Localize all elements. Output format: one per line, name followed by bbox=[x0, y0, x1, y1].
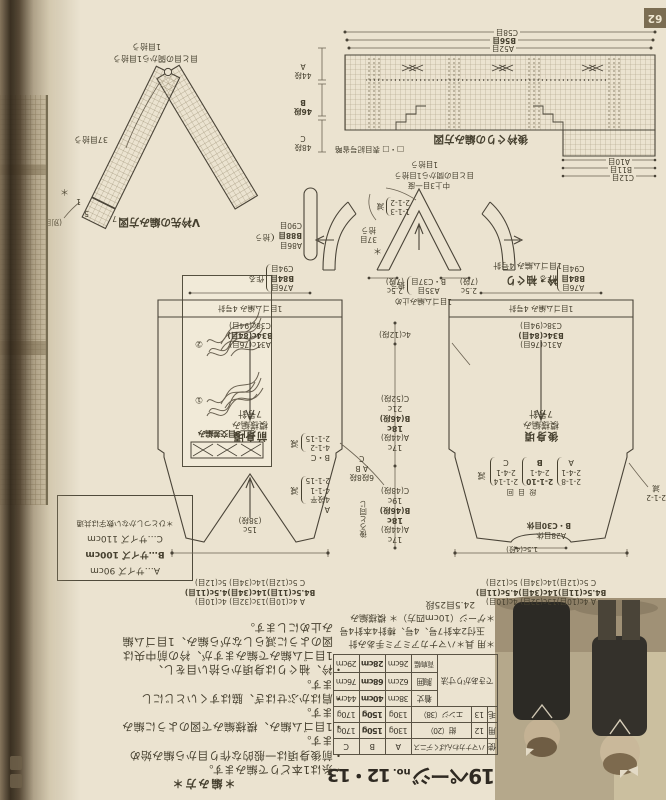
dec-line: 2-1-8 bbox=[561, 477, 581, 486]
dim-line: 21c bbox=[370, 403, 420, 413]
dim-line: A(44段) bbox=[370, 433, 420, 442]
table-row: 使 ハマナカわんぱくデニス A B C bbox=[333, 739, 497, 755]
vneck-apex-stitch bbox=[164, 68, 171, 75]
dec-word: 減 bbox=[646, 483, 666, 492]
collar-dec: 1-1-3 2-1-2 減 bbox=[377, 197, 410, 216]
table-row: 毛 13 エンジ（38） 130g 150g 170g bbox=[333, 707, 497, 723]
dim-line: 18c bbox=[370, 423, 420, 433]
chart-band bbox=[0, 341, 46, 355]
page-number-badge: 62 bbox=[644, 8, 666, 28]
howto-line: ・1目ゴム編み、模様編みで図のように編み bbox=[62, 719, 344, 733]
backneck-top-width-b: B11目 bbox=[608, 165, 634, 174]
yarn-color: エンジ（38） bbox=[411, 707, 471, 723]
front-top-widths: A 4c(10目)13c(32目) 4c(10目) B4.5c(11目)14c(… bbox=[170, 578, 330, 606]
pick-line: A35目 bbox=[411, 286, 446, 295]
dim-line: C(52段) bbox=[370, 394, 420, 403]
backneck-bottom-width-c: C58目 bbox=[494, 28, 520, 37]
amount-a: 130g bbox=[385, 723, 411, 739]
finished-a: 26cm bbox=[385, 655, 411, 673]
howto-line: ・衿、袖ぐりは身頃から拾い目をし、 bbox=[62, 662, 344, 676]
rows-size: A bbox=[290, 61, 316, 70]
backneck-top-width-a: A10目 bbox=[606, 157, 632, 166]
width-line: C 5c(12目)14c(34目) 5c(12目) bbox=[170, 578, 330, 587]
back-hold-bc: B・C30目休 bbox=[527, 521, 571, 530]
dec-stack: 4-1-2 2-1-15 bbox=[302, 433, 331, 452]
width-line: A31c(76目) bbox=[491, 340, 591, 349]
finished-name: 胸囲 bbox=[411, 673, 437, 691]
piece-name: 後身頃 bbox=[508, 429, 574, 442]
dec-line: 2-1-15 bbox=[306, 476, 331, 485]
dec-stack: 4段平 4-1-1 2-1-15 bbox=[302, 476, 331, 504]
howto-line: ます。 bbox=[62, 676, 344, 690]
dec-line: 2-4-1 bbox=[494, 468, 519, 477]
collar-rib-label: 1目ゴム編み 4号針 bbox=[493, 260, 562, 270]
backneck-top-width-c: C12目 bbox=[610, 173, 636, 182]
arm-line: 37目 bbox=[360, 235, 377, 244]
rows-size: C bbox=[290, 133, 316, 142]
dim-line: (7段) bbox=[460, 276, 478, 285]
finished-b: 68cm bbox=[359, 673, 385, 691]
dec-word: 減 bbox=[291, 485, 299, 495]
arm-line: 拾う bbox=[360, 225, 377, 234]
colhead-char: 使 bbox=[488, 739, 498, 755]
colhead-char: 毛 bbox=[488, 707, 498, 723]
dec-line: 4段平 bbox=[306, 495, 331, 504]
center-dims-lower: 17c A(44段) 18c B(46段) 21c C(52段) bbox=[370, 394, 420, 452]
caston-word: 作る bbox=[248, 273, 264, 283]
adjacent-page-chart-sliver bbox=[0, 95, 48, 505]
yarn-no: 13 bbox=[472, 707, 488, 723]
howto-line: み止めにします。 bbox=[62, 620, 344, 634]
dec-size: B・C bbox=[291, 452, 331, 462]
v-depth-line: 15c bbox=[226, 525, 274, 534]
front-dec-bc: B・C 4-1-2 2-1-15 減 bbox=[291, 433, 331, 462]
table-row: できあがり寸法 着丈 38cm 40cm 44cm bbox=[333, 691, 497, 707]
vneck-pick37: 37目拾う bbox=[74, 134, 108, 144]
dim-line: A(44段) bbox=[370, 525, 420, 534]
pattern-title: 19ページ no. 12・13 bbox=[325, 763, 495, 789]
vneck-star: ＊ bbox=[60, 185, 69, 196]
rows-value: 44段 bbox=[290, 71, 316, 80]
dec-header: 段 目 回 bbox=[461, 487, 581, 496]
child2-sweater bbox=[513, 602, 570, 720]
dec-size: A bbox=[291, 504, 331, 514]
dim-line: 19c bbox=[370, 495, 420, 505]
pick-line: B・C37目 bbox=[411, 276, 446, 285]
materials-table: 使 ハマナカわんぱくデニス A B C 用 12 紺（20） 130g 150g… bbox=[333, 654, 498, 755]
children-photo bbox=[495, 598, 666, 800]
back-neck-depth: 1.5c(4段) bbox=[506, 544, 538, 553]
rows-size: B bbox=[290, 97, 316, 106]
dec-line: 2-1-2 bbox=[646, 493, 666, 502]
yarn-name: ハマナカわんぱくデニス bbox=[411, 739, 487, 755]
backneck-mini-grid bbox=[563, 130, 655, 156]
scanned-knitting-page: 19ページ no. 12・13 使 ハマナカわんぱくデニス A B C 用 12… bbox=[0, 0, 666, 800]
amount-a: 130g bbox=[385, 707, 411, 723]
vneck-n1: 1 bbox=[76, 197, 81, 206]
dec-line: 2-4-1 bbox=[561, 468, 581, 477]
collar-star: ＊ bbox=[373, 244, 382, 255]
dim-line: 2.5c bbox=[460, 286, 478, 295]
back-caption: 後身頃 模様編み 7号針 bbox=[508, 406, 574, 442]
collar-left-dim: 2.5c (7段) bbox=[460, 276, 478, 295]
dec-col-a: 2-1-8 2-4-1 A bbox=[557, 458, 581, 487]
finished-b: 40cm bbox=[359, 691, 385, 707]
backneck-main-grid bbox=[345, 55, 655, 130]
front-same-as-back: 後ろと同じ bbox=[359, 464, 368, 538]
finished-a: 62cm bbox=[385, 673, 411, 691]
shoulder-line: C bbox=[349, 454, 374, 463]
armhole-rows-b: 46段 B bbox=[290, 97, 316, 116]
center-dims-upper: 17c A(44段) 18c B(46段) 19c C(48段) bbox=[370, 486, 420, 544]
finished-name: 着丈 bbox=[411, 691, 437, 707]
backneck-chart-caption: 後衿ぐりの編み方図 bbox=[432, 132, 531, 145]
stitch-name: 模様編み bbox=[217, 418, 283, 429]
dec-line: 1-1-3 bbox=[390, 207, 410, 216]
armhole-rows-c: 48段 C bbox=[290, 133, 316, 152]
front-dec-a: A 4段平 4-1-1 2-1-15 減 bbox=[291, 476, 331, 514]
armhole-rows-a: 44段 A bbox=[290, 61, 316, 80]
armhole-band-right bbox=[323, 202, 356, 270]
dec-line: 2-1-15 bbox=[306, 433, 331, 442]
howto-line: ・前後身頃は一般的な作り目から編み始め bbox=[62, 747, 344, 761]
dim-line: B(46段) bbox=[370, 413, 420, 422]
dec-size: A bbox=[561, 458, 581, 468]
collar-pickup: A35目 B・C37目 拾う bbox=[390, 276, 446, 295]
finished-size-label: できあがり寸法 bbox=[438, 655, 498, 707]
table-row: 用 12 紺（20） 130g 150g 170g bbox=[333, 723, 497, 739]
howto-line: ます。 bbox=[62, 705, 344, 719]
pick-word: 拾う bbox=[390, 281, 405, 290]
piece-name: 前身頃 bbox=[217, 429, 283, 442]
collar-caption: 衿・袖ぐり bbox=[506, 273, 559, 286]
width-line: A31c(76目) bbox=[200, 340, 300, 349]
howto-line: 図のように減らしながら編み、1目ゴム編 bbox=[62, 634, 344, 648]
back-neck-dec-block: 段 目 回 2-1-8 2-4-1 A 2-1-10 2-4-1 B 2-1-1… bbox=[461, 458, 581, 497]
tools-line-1: ＊用 具＊ハマナカアミアミ手あみ針 bbox=[348, 637, 495, 648]
v-depth-line: (38段) bbox=[226, 515, 274, 524]
vneck-chart-caption: V衿先の編み方図 bbox=[118, 215, 200, 228]
howto-line: ・糸は1本どりで編みます。 bbox=[62, 762, 344, 776]
width-line: C 5c(12目)14c(34目) 5c(12目) bbox=[461, 578, 621, 587]
vneck-right-arm bbox=[82, 66, 180, 228]
amount-b: 150g bbox=[359, 723, 385, 739]
spine-glyph-mark bbox=[10, 774, 22, 788]
colhead-char: 用 bbox=[488, 723, 498, 739]
howto-line: ・肩はかぶせはぎ、脇はすくいとじにし bbox=[62, 691, 344, 705]
backneck-bottom-width-a: A52目 bbox=[490, 44, 516, 53]
dec-line: 2-1-2 bbox=[390, 197, 410, 206]
howto-heading: ＊編み方＊ bbox=[62, 776, 344, 790]
vneck-pick1: 1目拾う bbox=[132, 41, 161, 51]
size-header-a: A bbox=[385, 739, 411, 755]
rows-value: 46段 bbox=[290, 107, 316, 116]
finished-a: 38cm bbox=[385, 691, 411, 707]
dec-col-c: 2-1-14 2-4-1 C bbox=[490, 458, 519, 487]
howto-block: ＊編み方＊ ・糸は1本どりで編みます。 ・前後身頃は一般的な作り目から編み始め … bbox=[62, 620, 344, 790]
title-no-label: no. bbox=[393, 765, 411, 778]
back-top-widths: A 4c(10目)13c(32目) 4c(10目) B4.5c(11目)14c(… bbox=[461, 578, 621, 606]
dec-line: 4-1-1 bbox=[306, 485, 331, 494]
dec-line: 2-4-1 bbox=[526, 468, 553, 477]
collar-band-a: A86目 bbox=[280, 241, 302, 250]
stitch-name: 模様編み bbox=[508, 418, 574, 429]
dim-line: 17c bbox=[370, 534, 420, 544]
back-hold-a: A28目休 bbox=[536, 531, 566, 540]
chart-band bbox=[0, 165, 46, 175]
collar-apex-1: 中上3目一度 bbox=[408, 181, 450, 190]
dec-word: 減 bbox=[478, 470, 486, 480]
finished-b: 28cm bbox=[359, 655, 385, 673]
front-caption: 前身頃 模様編み 7号針 bbox=[217, 406, 283, 442]
width-line: A 4c(10目)13c(32目) 4c(10目) bbox=[170, 597, 330, 606]
backneck-legend: □・□ 表目記号省略 bbox=[333, 145, 406, 154]
title-page-word: 19ページ bbox=[413, 763, 495, 788]
dec-line: 4-1-2 bbox=[306, 443, 331, 452]
howto-line: 1目ゴム編みで編みますが、衿の前中央は bbox=[62, 648, 344, 662]
size-header-b: B bbox=[359, 739, 385, 755]
tools-line-2: 玉付2本針7号、4号、棒針4本針4号 bbox=[339, 624, 485, 635]
dim-line: B(46段) bbox=[370, 505, 420, 514]
front-v-depth: 15c (38段) bbox=[226, 515, 274, 534]
collar-arm37: 37目 拾う bbox=[360, 225, 377, 244]
rows-value: 48段 bbox=[290, 143, 316, 152]
backneck-bottom-width-b: B56目 bbox=[490, 36, 518, 45]
vneck-n7: 7 bbox=[112, 214, 117, 223]
vneck-n5: 5 bbox=[84, 209, 89, 218]
dec-size: B bbox=[526, 458, 553, 468]
dec-col-b: 2-1-10 2-4-1 B bbox=[522, 458, 553, 487]
dec-line: 2-1-14 bbox=[494, 477, 519, 486]
dec-word: 減 bbox=[377, 202, 385, 211]
vneck-pick-between: 目と目の間から1目拾う bbox=[113, 53, 198, 63]
width-line: A 4c(10目)13c(32目) 4c(10目) bbox=[461, 597, 621, 606]
width-line: B4.5c(11目)14c(34目)4.5c(11目) bbox=[461, 587, 621, 596]
dec-size: C bbox=[494, 458, 519, 468]
amount-b: 150g bbox=[359, 707, 385, 723]
rotated-page-sheet: 19ページ no. 12・13 使 ハマナカわんぱくデニス A B C 用 12… bbox=[0, 0, 666, 800]
yarn-color: 紺（20） bbox=[411, 723, 471, 739]
dim-line: 18c bbox=[370, 515, 420, 525]
dim-line: C(48段) bbox=[370, 486, 420, 495]
howto-line: ます。 bbox=[62, 733, 344, 747]
materials-table-wrap: 使 ハマナカわんぱくデニス A B C 用 12 紺（20） 130g 150g… bbox=[333, 654, 498, 755]
needle-size: 7号針 bbox=[217, 406, 283, 417]
dec-word: 減 bbox=[291, 438, 299, 448]
pickup-pill bbox=[304, 188, 317, 260]
dec-line: 2-1-10 bbox=[526, 477, 553, 486]
spine-glyph-mark bbox=[10, 756, 22, 770]
width-line: B4.5c(11目)14c(34目)4.5c(11目) bbox=[170, 587, 330, 596]
yarn-no: 12 bbox=[472, 723, 488, 739]
needle-size: 7号針 bbox=[508, 406, 574, 417]
dim-line: 17c bbox=[370, 442, 420, 452]
back-armhole-dec: 2-1-2 減 bbox=[646, 483, 666, 502]
finished-name: 背肩幅 bbox=[411, 655, 437, 673]
collar-bindoff: 1目ゴム編み止め bbox=[395, 297, 452, 306]
